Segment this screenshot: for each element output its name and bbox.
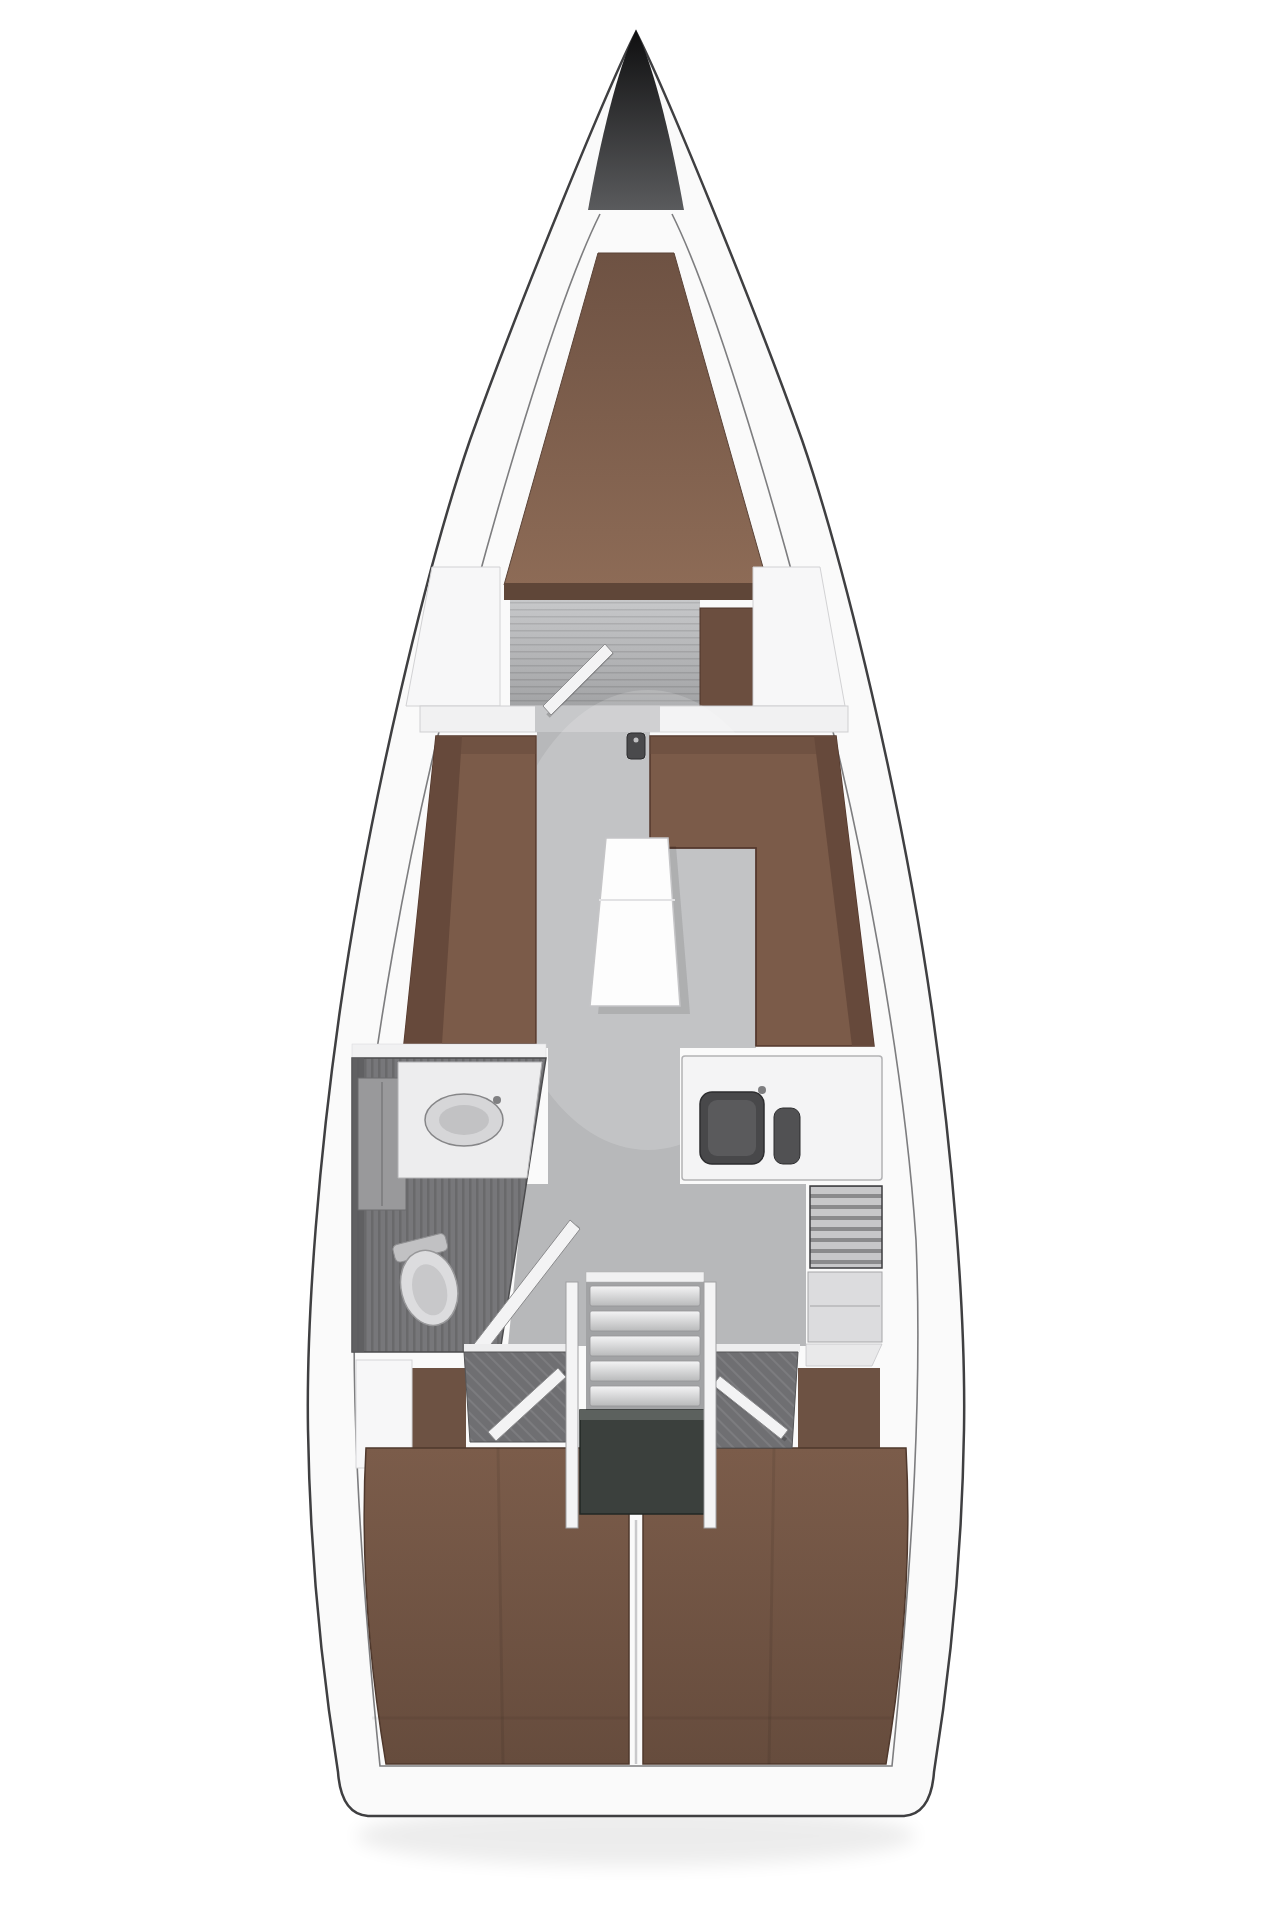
cutting-board <box>774 1108 800 1164</box>
galley-faucet <box>758 1086 766 1094</box>
companionway-step <box>590 1361 700 1381</box>
yacht-floorplan-page <box>0 0 1280 1920</box>
aft-cabin-floor-port <box>464 1352 566 1442</box>
aft-sill-starboard <box>716 1344 800 1352</box>
companionway-sill <box>586 1272 704 1282</box>
companionway-step <box>590 1336 700 1356</box>
companionway-step <box>590 1286 700 1306</box>
stove <box>810 1186 882 1268</box>
yacht-floorplan-canvas <box>0 0 1280 1920</box>
settee-port-top-edge <box>435 736 536 754</box>
galley-sink-bowl <box>708 1100 756 1156</box>
settee-starboard-top-edge <box>650 736 838 754</box>
handrail-post-port <box>566 1282 578 1528</box>
berth-extension-starboard <box>798 1368 880 1448</box>
wardrobe-starboard <box>700 608 753 706</box>
engine-box-top <box>580 1410 704 1420</box>
mast-highlight <box>634 738 639 743</box>
saloon-table <box>590 838 680 1006</box>
head-faucet <box>493 1096 501 1104</box>
companionway-step <box>590 1386 700 1406</box>
head-sink-bowl <box>439 1105 489 1135</box>
mast-post <box>627 733 645 759</box>
handrail-post-starboard <box>704 1282 716 1528</box>
berth-extension-port <box>408 1368 466 1448</box>
locker-forward-port <box>406 567 500 706</box>
engine-box <box>580 1410 704 1514</box>
v-berth-foot-locker <box>504 583 756 600</box>
galley-lower-cabinet <box>806 1344 882 1366</box>
head-forward-wall <box>352 1044 546 1058</box>
aft-cabin-entrance-starboard <box>713 1344 800 1448</box>
aft-cabin-entrance-port <box>464 1344 566 1442</box>
companionway-step <box>590 1311 700 1331</box>
aft-sill-port <box>464 1344 566 1352</box>
